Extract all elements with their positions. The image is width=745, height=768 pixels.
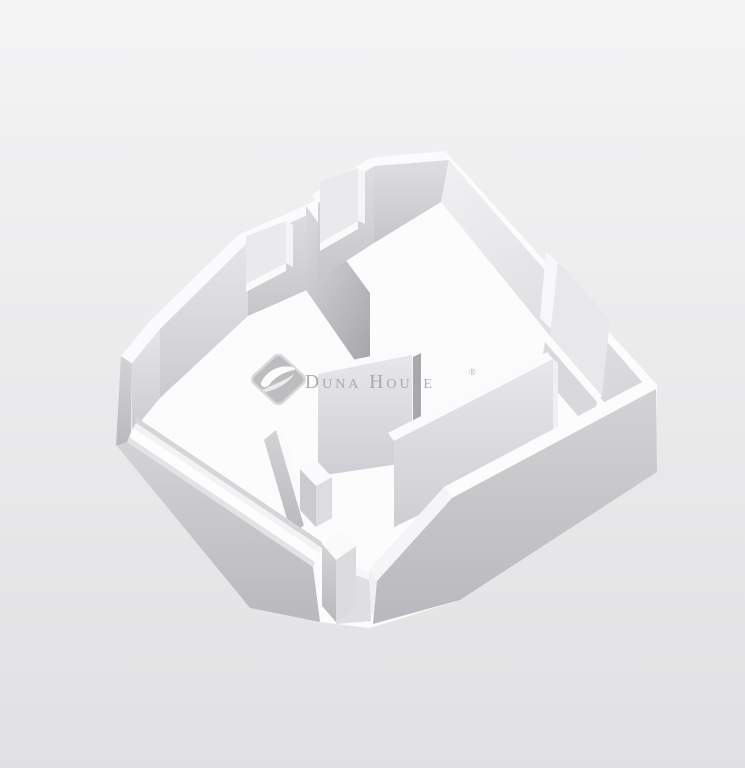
- floorplan-render: Duna House ®: [0, 0, 745, 768]
- floorplan-page: Duna House ®: [0, 0, 745, 768]
- watermark-registered-mark: ®: [469, 367, 476, 377]
- door-jamb-block: [322, 531, 356, 622]
- watermark-brand-text: Duna House: [305, 372, 435, 393]
